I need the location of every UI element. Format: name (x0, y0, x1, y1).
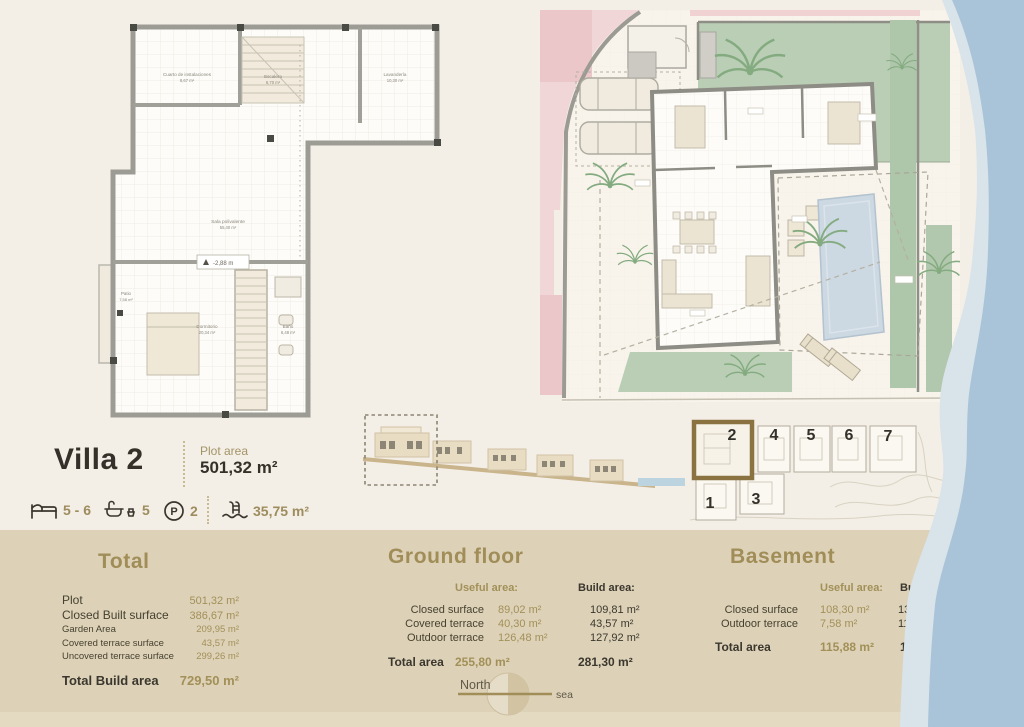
svg-text:Patio: Patio (121, 291, 132, 296)
basement-floor-plan: -2,88 m Cuarto de instalaciones 8,67 m² … (95, 15, 445, 425)
svg-text:1: 1 (706, 495, 715, 512)
sea-label: sea (556, 689, 573, 701)
svg-text:6: 6 (845, 427, 854, 444)
bed-2 (828, 102, 860, 144)
bs-total-label: Total area (715, 640, 771, 654)
basement-title: Basement (730, 545, 835, 569)
svg-text:55,40 m²: 55,40 m² (220, 225, 237, 230)
feature-baths: 5 (103, 500, 150, 520)
stairs-upper (242, 37, 304, 103)
total-build-area-value: 729,50 m² (177, 673, 239, 688)
svg-text:4: 4 (770, 427, 779, 444)
svg-text:3: 3 (752, 491, 761, 508)
highlighted-plot-villa-2 (694, 422, 752, 478)
bed-furniture (147, 313, 199, 375)
feature-divider (207, 496, 209, 524)
ground-floor-title: Ground floor (388, 545, 678, 569)
bs-total-useful: 115,88 m² (820, 640, 874, 654)
sea-strip (638, 478, 685, 486)
bed-1 (675, 106, 705, 148)
useful-area-header-2: Useful area: (820, 582, 883, 594)
north-compass: North sea (450, 668, 585, 720)
svg-text:20,34 m²: 20,34 m² (199, 330, 216, 335)
page-title: Villa 2 (54, 443, 144, 477)
north-label: North (460, 678, 491, 692)
svg-text:-2,88 m: -2,88 m (213, 261, 233, 267)
svg-text:2: 2 (728, 427, 737, 444)
svg-text:Escalera: Escalera (264, 74, 282, 79)
svg-text:6,48 m²: 6,48 m² (281, 330, 296, 335)
plot-area-value: 501,32 m² (200, 458, 278, 478)
feature-pool: 35,75 m² (222, 500, 309, 522)
total-build-area-label: Total Build area (62, 673, 177, 688)
svg-text:6,70 m²: 6,70 m² (266, 80, 281, 85)
pool (818, 194, 884, 340)
gf-total-label: Total area (388, 655, 444, 669)
kitchen-island (746, 256, 770, 306)
svg-text:Cuarto de instalaciones: Cuarto de instalaciones (163, 72, 212, 77)
build-area-header: Build area: (578, 582, 635, 594)
pool-icon (222, 500, 248, 522)
sea-overlay (880, 0, 1024, 727)
gf-total-build: 281,30 m² (578, 655, 633, 669)
parking-icon: P (163, 500, 185, 522)
gf-total-useful: 255,80 m² (455, 655, 510, 669)
svg-text:Baño: Baño (283, 324, 294, 329)
level-marker: -2,88 m (197, 255, 249, 269)
svg-text:Dormitorio: Dormitorio (196, 324, 218, 329)
car-1 (580, 78, 658, 110)
bed-icon (30, 500, 58, 520)
plot-area-label: Plot area (200, 444, 248, 458)
brochure-page: -2,88 m Cuarto de instalaciones 8,67 m² … (0, 0, 1024, 727)
ground-floor-table: Ground floor Useful area: Build area: Cl… (388, 545, 678, 569)
title-divider (183, 441, 185, 487)
svg-text:P: P (170, 506, 177, 518)
garden-south (618, 352, 792, 392)
dining-table (680, 220, 714, 244)
svg-text:8,67 m²: 8,67 m² (180, 78, 195, 83)
bath-icon (103, 500, 137, 520)
svg-text:Lavandería: Lavandería (384, 72, 407, 77)
coastal-elevation (355, 405, 685, 505)
car-2 (580, 122, 658, 154)
total-title: Total (98, 550, 150, 574)
svg-text:5: 5 (807, 427, 816, 444)
useful-area-header: Useful area: (455, 582, 518, 594)
feature-parking: P 2 (163, 500, 198, 522)
svg-text:7,58 m²: 7,58 m² (119, 297, 133, 302)
feature-beds: 5 - 6 (30, 500, 91, 520)
svg-text:10,30 m²: 10,30 m² (387, 78, 404, 83)
stairs-lower (235, 270, 267, 410)
